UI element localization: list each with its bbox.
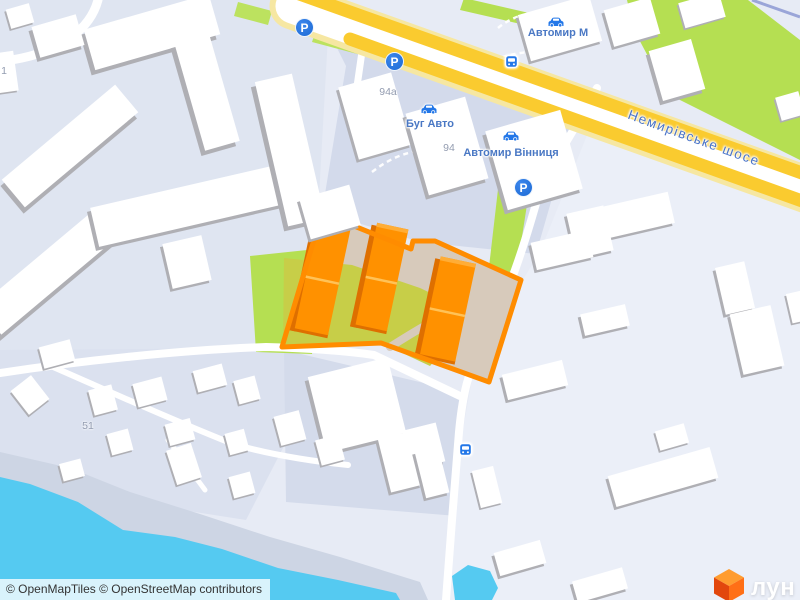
car-dealership-icon: [420, 102, 438, 120]
car-dealership-icon: [502, 129, 520, 147]
parking-icon: P: [295, 18, 314, 37]
bus-stop-icon: [458, 442, 473, 462]
parking-icon: P: [385, 52, 404, 71]
lun-logo[interactable]: лун: [714, 569, 795, 600]
parking-icon: P: [514, 178, 533, 197]
car-dealership-icon: [547, 15, 565, 33]
lun-cube-icon: [714, 569, 744, 600]
map-attribution[interactable]: © OpenMapTiles © OpenStreetMap contribut…: [0, 579, 270, 600]
map-canvas[interactable]: Немирівське шосе Автомир М Буг Авто Авто…: [0, 0, 800, 600]
bus-stop-icon: [504, 54, 519, 74]
lun-logo-text: лун: [751, 576, 795, 600]
